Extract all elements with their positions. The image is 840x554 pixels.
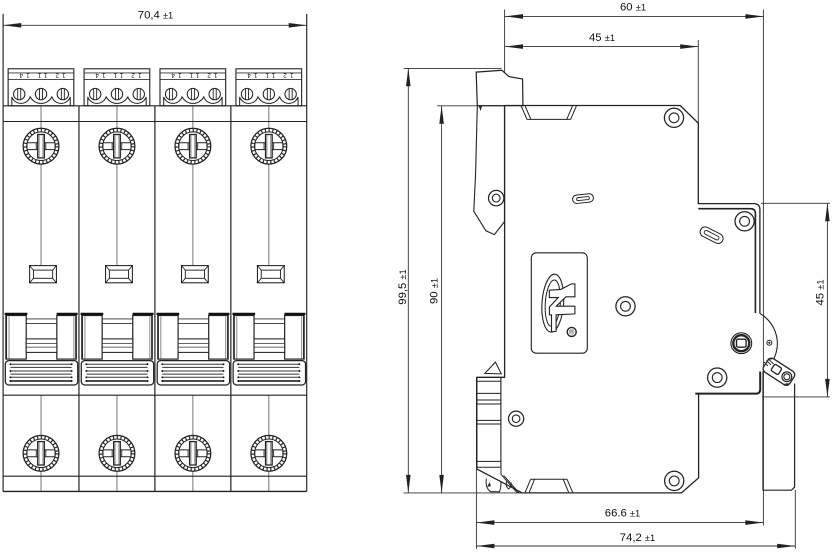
svg-text:99,5 ±1: 99,5 ±1 bbox=[397, 269, 409, 304]
svg-text:60 ±1: 60 ±1 bbox=[620, 1, 646, 13]
svg-text:45 ±1: 45 ±1 bbox=[589, 32, 615, 44]
svg-text:45 ±1: 45 ±1 bbox=[815, 280, 827, 306]
svg-text:®: ® bbox=[569, 328, 575, 337]
svg-text:66.6 ±1: 66.6 ±1 bbox=[605, 508, 640, 520]
svg-text:70,4 ±1: 70,4 ±1 bbox=[138, 10, 173, 22]
svg-text:74,2 ±1: 74,2 ±1 bbox=[620, 532, 655, 544]
svg-text:90 ±1: 90 ±1 bbox=[429, 278, 441, 304]
